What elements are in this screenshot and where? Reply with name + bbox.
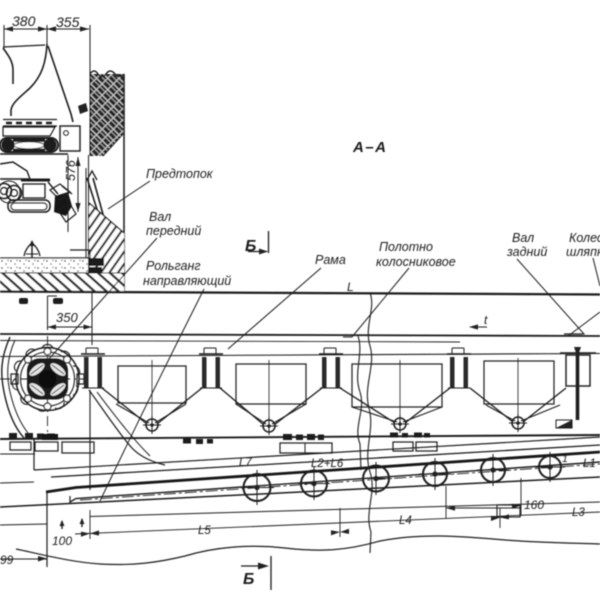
svg-text:направляющий: направляющий <box>143 274 231 288</box>
svg-text:350: 350 <box>56 310 78 325</box>
svg-text:380: 380 <box>12 13 36 29</box>
svg-text:задний: задний <box>506 245 547 259</box>
svg-text:шляпное: шляпное <box>566 245 600 259</box>
svg-text:t: t <box>484 313 488 327</box>
svg-text:355: 355 <box>56 14 80 30</box>
svg-text:А–А: А–А <box>352 139 388 156</box>
svg-text:Рольганг: Рольганг <box>146 259 201 273</box>
svg-text:576: 576 <box>64 160 78 181</box>
svg-text:L5: L5 <box>198 525 211 537</box>
svg-text:L3: L3 <box>572 507 585 519</box>
svg-text:L7: L7 <box>239 457 252 469</box>
svg-text:L: L <box>347 280 354 294</box>
svg-text:Предтопок: Предтопок <box>146 167 214 181</box>
svg-text:Колесо: Колесо <box>569 231 600 245</box>
svg-text:1: 1 <box>562 453 568 465</box>
svg-text:Рама: Рама <box>315 253 346 267</box>
svg-text:колосниковое: колосниковое <box>376 255 456 269</box>
svg-text:99: 99 <box>0 553 14 567</box>
svg-text:Вал: Вал <box>149 210 171 224</box>
svg-text:L2+L6: L2+L6 <box>311 458 344 470</box>
svg-text:Б: Б <box>243 571 254 588</box>
svg-text:передний: передний <box>146 224 201 238</box>
svg-text:L1: L1 <box>583 458 596 470</box>
svg-text:Полотно: Полотно <box>379 240 433 254</box>
svg-text:160: 160 <box>524 498 544 512</box>
svg-text:100: 100 <box>52 534 72 548</box>
svg-text:Б: Б <box>245 238 256 255</box>
svg-text:Вал: Вал <box>512 231 534 245</box>
svg-text:L4: L4 <box>399 515 412 527</box>
